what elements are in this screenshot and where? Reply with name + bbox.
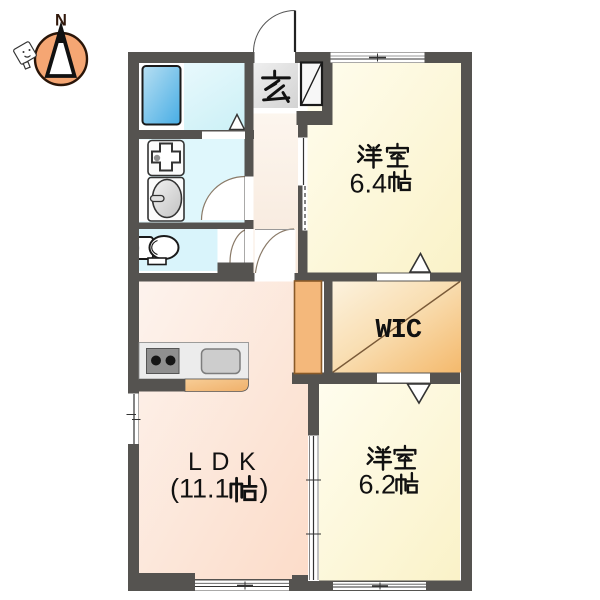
- svg-text:LDK: LDK: [188, 448, 265, 476]
- svg-text:): ): [260, 474, 269, 504]
- svg-text:(11.1: (11.1: [170, 474, 230, 504]
- svg-text:6.4: 6.4: [350, 169, 388, 199]
- svg-text:6.2: 6.2: [359, 470, 397, 500]
- svg-text:N: N: [55, 12, 67, 30]
- svg-text:WIC: WIC: [376, 316, 422, 346]
